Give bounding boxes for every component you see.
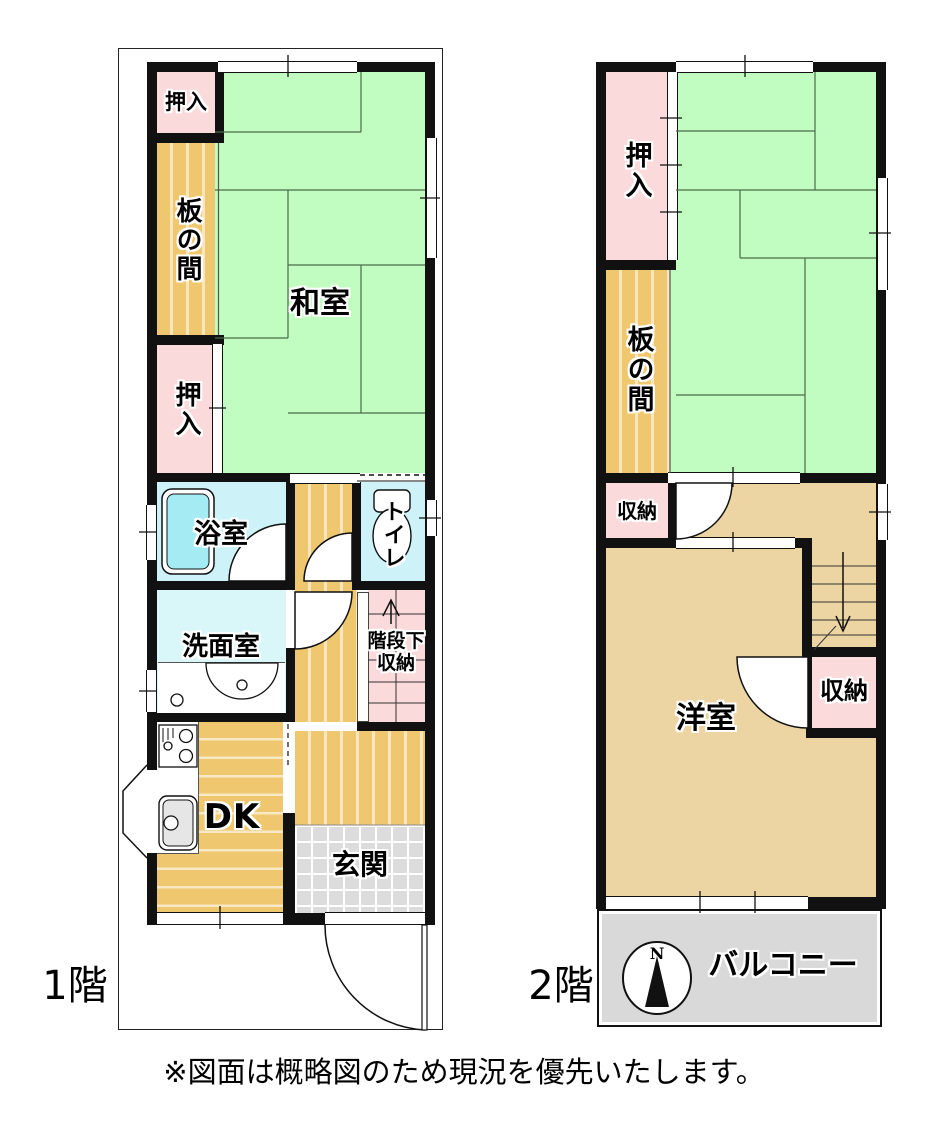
window: [606, 896, 808, 910]
label-dk-1f: DK: [200, 798, 264, 838]
wall: [283, 813, 295, 913]
label-floor2: 2階: [522, 962, 600, 1010]
bay-window-opening: [147, 770, 157, 853]
wall: [357, 722, 425, 731]
hall-1f-upper: [295, 481, 352, 590]
wall: [806, 657, 812, 728]
wall: [147, 581, 295, 590]
wall: [802, 548, 812, 647]
label-bathroom-1f: 浴室: [180, 518, 262, 552]
wall: [596, 260, 676, 270]
label-itanoma-2f: 板の間: [618, 288, 658, 452]
wall: [352, 581, 435, 590]
window: [426, 500, 437, 536]
label-itanoma-1f: 板の間: [168, 166, 204, 314]
window: [877, 178, 888, 290]
room-washitsu-1f: [215, 72, 425, 473]
room-tatami-2f: [670, 72, 876, 473]
label-oshiire-mid-1f: 押入: [166, 356, 204, 464]
label-storage-right-2f: 収納: [813, 677, 875, 707]
window: [877, 484, 888, 540]
label-genkan-1f: 玄関: [326, 848, 394, 882]
window: [426, 138, 437, 258]
window: [676, 61, 813, 73]
label-understair-1f: 階段下 収納: [358, 626, 434, 680]
window: [146, 505, 157, 560]
wall: [147, 713, 295, 722]
sliding-door: [676, 537, 795, 549]
window: [146, 670, 157, 712]
label-washroom-1f: 洗面室: [160, 632, 282, 664]
hall-1f-mid: [295, 590, 357, 722]
wall: [286, 648, 295, 722]
wall: [802, 647, 886, 657]
label-storage-left-2f: 収納: [608, 497, 666, 525]
sliding-door: [290, 473, 360, 484]
wall: [147, 133, 224, 143]
washroom-counter: [158, 662, 285, 714]
footnote-text: ※図面は概略図のため現況を優先いたします。: [0, 1052, 928, 1094]
label-toilet-1f: トイレ: [373, 490, 411, 578]
label-oshiire-2f: 押入: [616, 94, 656, 248]
entrance-door-opening: [325, 912, 425, 925]
window: [157, 912, 283, 925]
kitchen-counter: [157, 722, 199, 854]
wall: [668, 483, 676, 538]
wall: [286, 482, 295, 590]
window: [218, 61, 357, 73]
label-washitsu-1f: 和室: [267, 286, 373, 322]
label-balcony-2f: バルコニー: [698, 948, 868, 984]
wall: [596, 62, 606, 909]
sliding-door: [668, 472, 800, 484]
label-youshitsu-2f: 洋室: [668, 700, 744, 738]
sliding-door: [667, 72, 678, 260]
wall: [352, 482, 361, 590]
wall: [215, 72, 224, 138]
compass-north-label: N: [647, 944, 667, 964]
sliding-door: [212, 344, 223, 473]
label-understair-line2: 収納: [377, 653, 415, 675]
wall: [795, 538, 812, 548]
wall: [147, 473, 290, 482]
label-oshiire-top-1f: 押入: [158, 84, 214, 120]
label-understair-line1: 階段下: [367, 631, 424, 653]
wall: [806, 728, 886, 738]
label-floor1: 1階: [36, 962, 114, 1010]
hall-1f-lower: [295, 731, 425, 825]
wall: [596, 538, 676, 548]
floorplan-page: 押入 板の間 和室 押入 浴室 トイレ 洗面室 階段下 収納 DK 玄関 1階 …: [0, 0, 928, 1138]
